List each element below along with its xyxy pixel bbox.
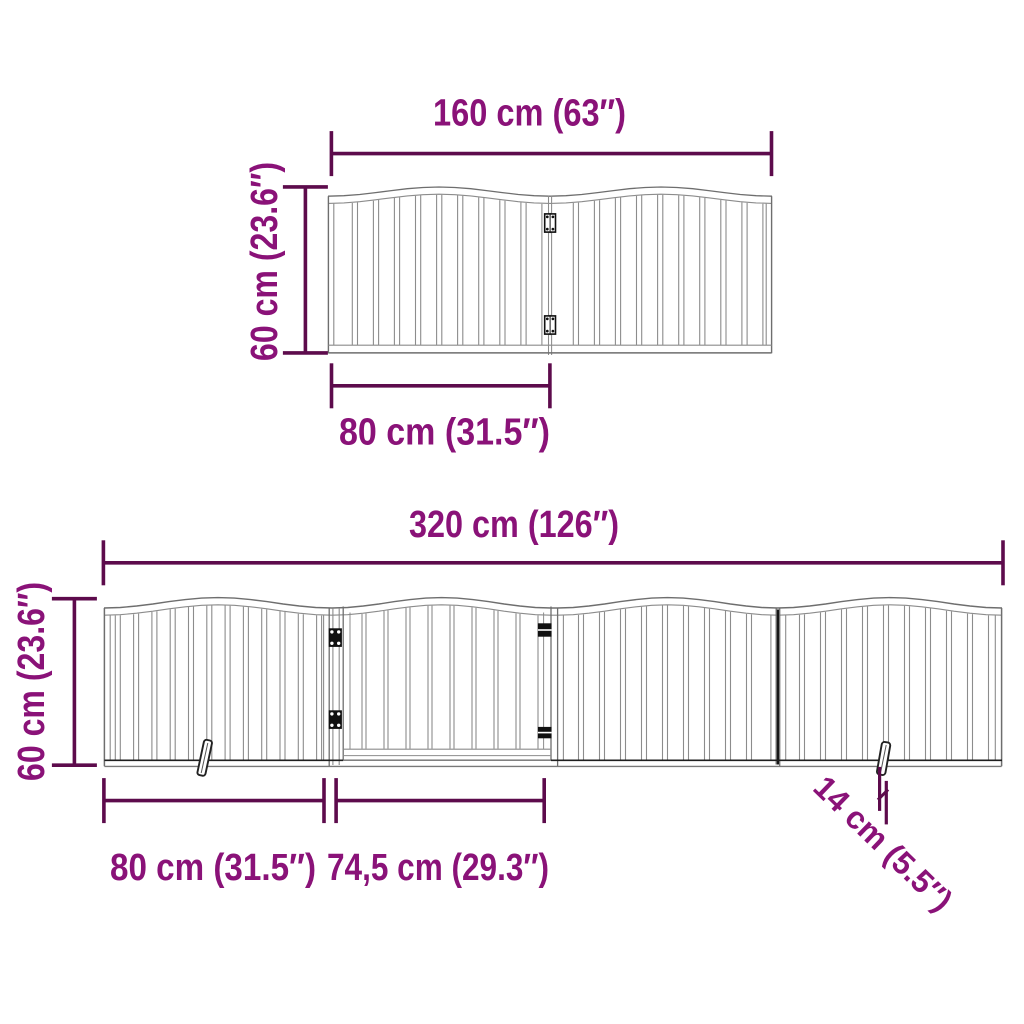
svg-text:60 cm (23.6″): 60 cm (23.6″) <box>11 582 53 781</box>
svg-text:80 cm (31.5″): 80 cm (31.5″) <box>339 412 550 454</box>
svg-text:160 cm (63″): 160 cm (63″) <box>433 93 626 135</box>
svg-text:74,5 cm (29.3″): 74,5 cm (29.3″) <box>327 847 549 889</box>
svg-text:80 cm (31.5″): 80 cm (31.5″) <box>110 847 316 889</box>
svg-text:60 cm (23.6″): 60 cm (23.6″) <box>244 162 286 361</box>
svg-text:320 cm (126″): 320 cm (126″) <box>409 504 619 546</box>
